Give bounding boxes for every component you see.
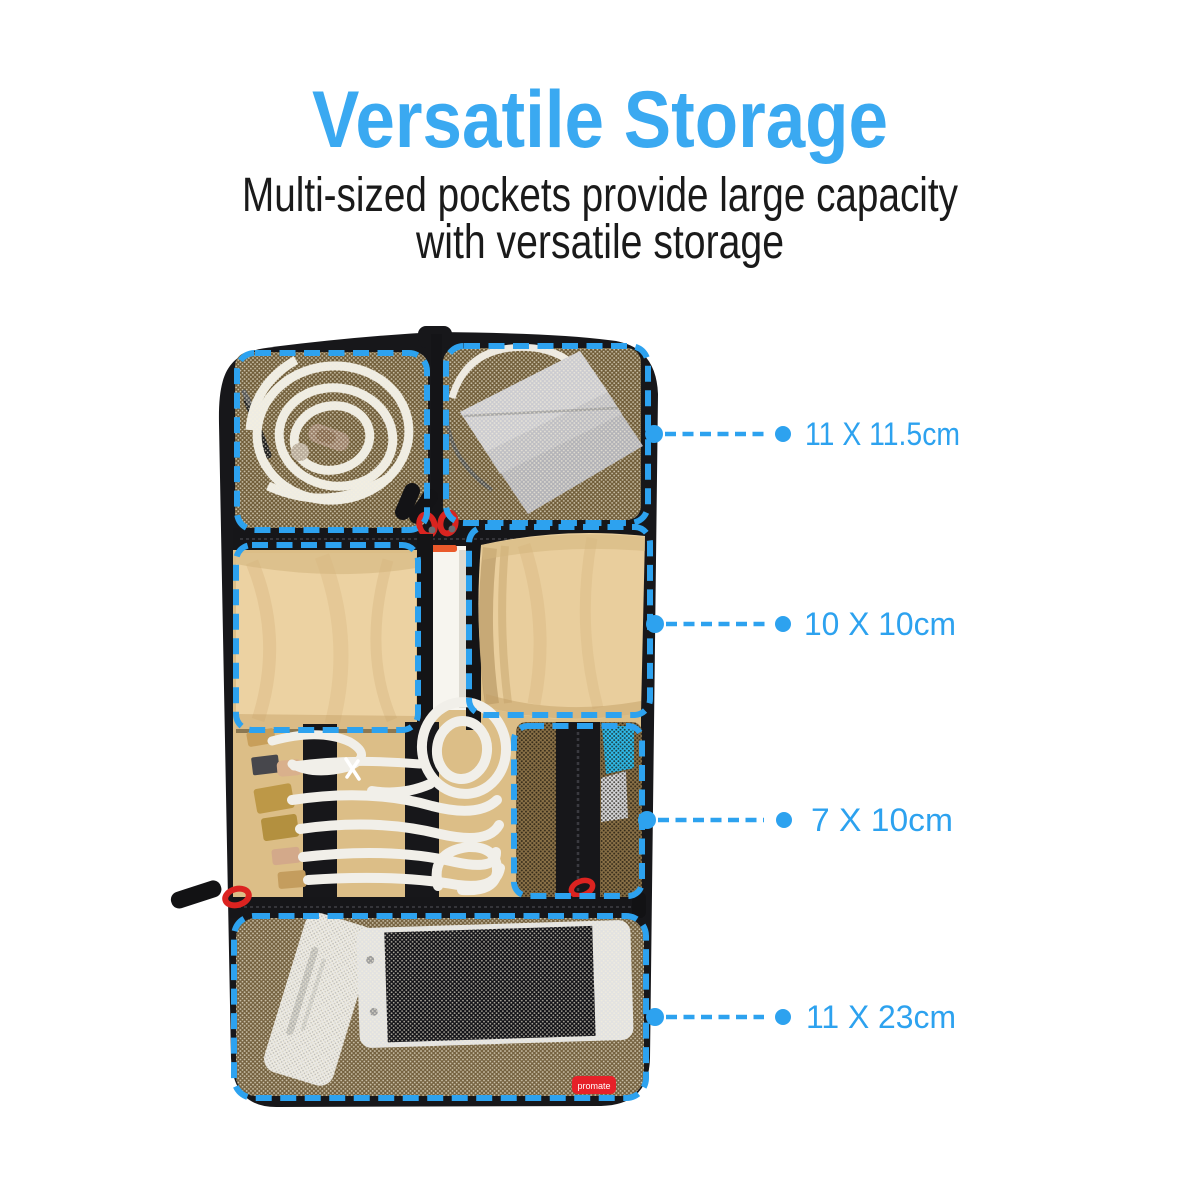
svg-text:Multi-sized pockets provide la: Multi-sized pockets provide large capaci…: [242, 169, 958, 222]
svg-text:with versatile storage: with versatile storage: [415, 216, 784, 269]
svg-text:10 X 10cm: 10 X 10cm: [804, 606, 956, 642]
svg-text:7 X 10cm: 7 X 10cm: [811, 802, 953, 838]
svg-text:promate: promate: [577, 1081, 610, 1091]
svg-text:11 X 23cm: 11 X 23cm: [806, 999, 956, 1035]
svg-text:11 X 11.5cm: 11 X 11.5cm: [805, 416, 960, 452]
svg-text:Versatile Storage: Versatile Storage: [312, 75, 888, 165]
